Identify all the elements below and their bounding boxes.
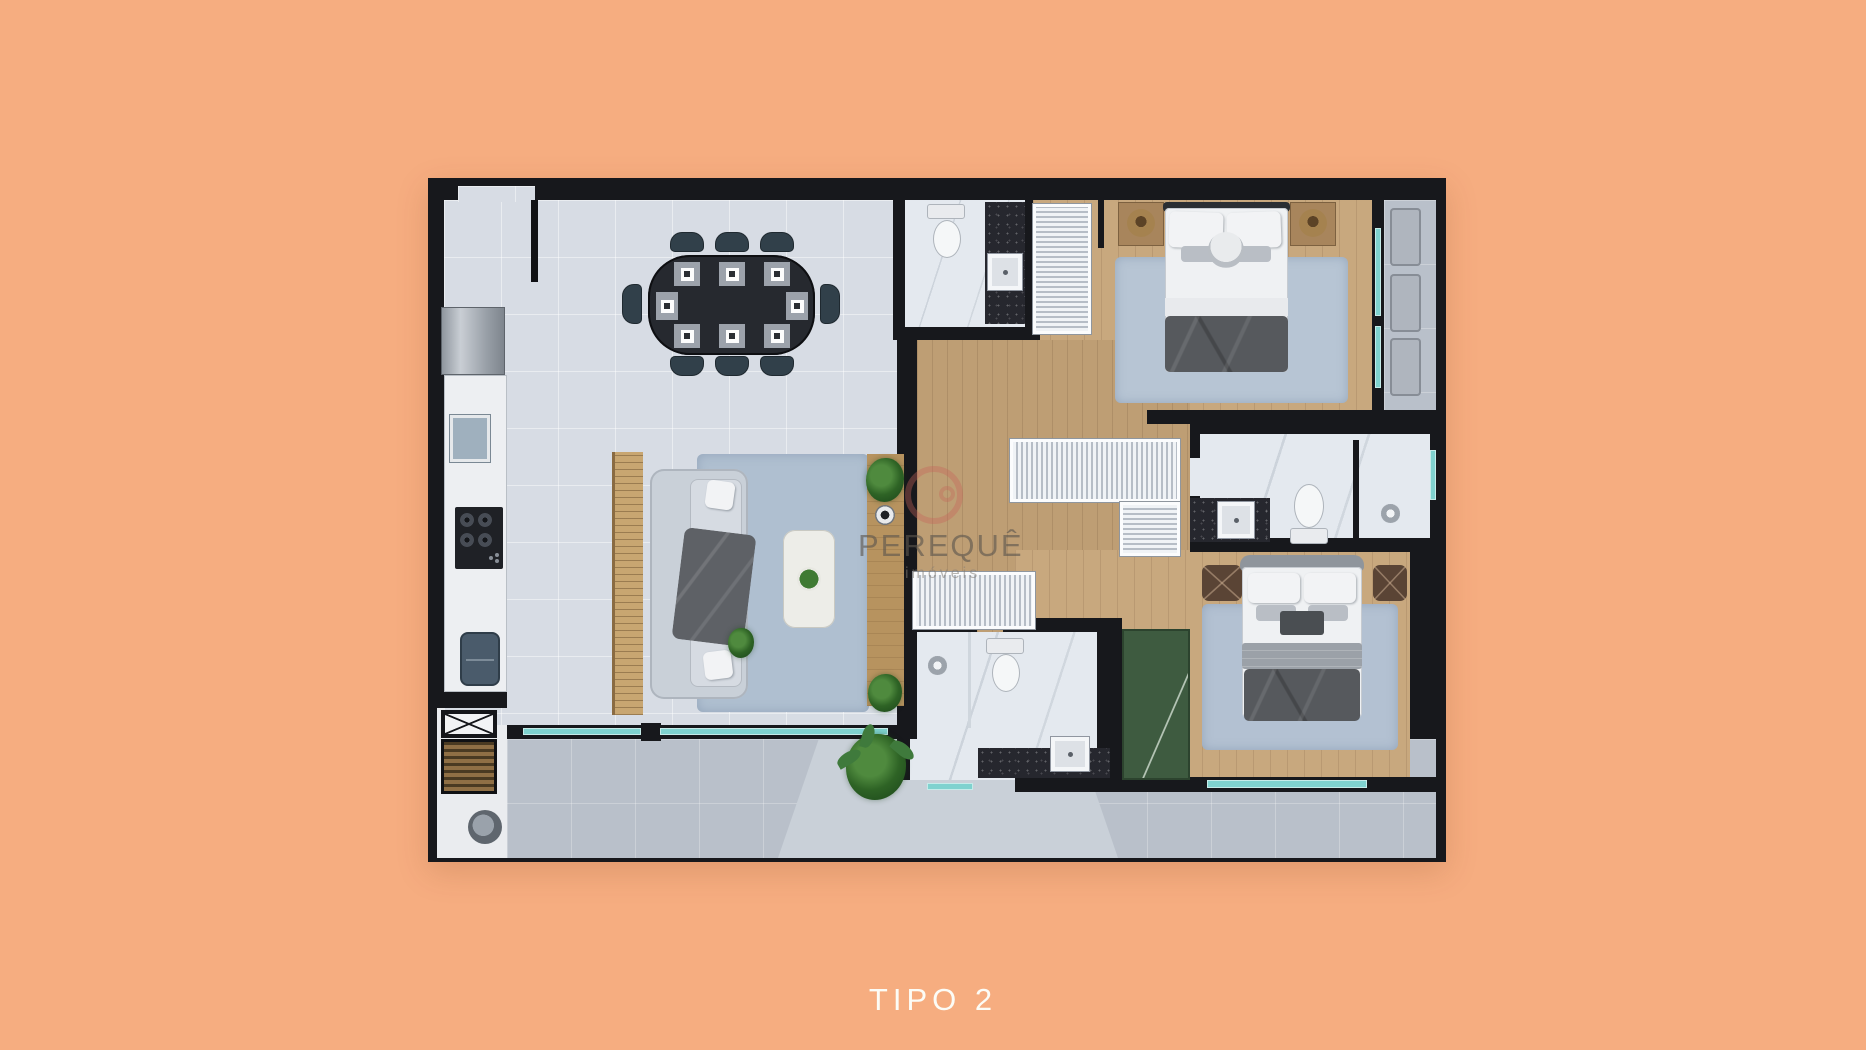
wall-shower-partition1 bbox=[1353, 440, 1359, 544]
burner-icon bbox=[478, 533, 492, 547]
wall-powder-left bbox=[893, 200, 905, 333]
entry-door-leaf bbox=[531, 200, 538, 282]
place-setting bbox=[764, 262, 790, 286]
wall-terrace-pier bbox=[641, 723, 661, 741]
bathroom2-sink bbox=[1051, 737, 1089, 771]
hall-closet-long bbox=[1010, 439, 1180, 502]
toilet-bowl bbox=[992, 654, 1020, 692]
folded-blanket bbox=[1280, 611, 1324, 635]
toilet-bowl bbox=[1294, 484, 1324, 528]
dining-chair bbox=[670, 356, 704, 376]
burner-icon bbox=[460, 533, 474, 547]
sofa bbox=[650, 469, 748, 699]
living-sliding-door-glass-right bbox=[660, 728, 888, 735]
bed-bedroom2 bbox=[1240, 555, 1364, 721]
bedroom1-glass-wall-b bbox=[1375, 326, 1381, 388]
barbecue-grill bbox=[441, 739, 497, 794]
wall-bathroom1-left-a bbox=[1190, 434, 1200, 458]
burner-icon bbox=[478, 513, 492, 527]
page-background: { "caption": { "label": "TIPO 2" }, "wat… bbox=[0, 0, 1866, 1050]
sun-lounger bbox=[1390, 208, 1421, 266]
shower-head bbox=[1381, 504, 1400, 523]
shower-glass-partition bbox=[968, 632, 971, 728]
toilet-tank bbox=[927, 204, 965, 219]
bathroom2-window bbox=[927, 783, 973, 790]
pouf bbox=[1202, 565, 1242, 601]
duvet bbox=[1165, 316, 1288, 372]
place-setting bbox=[719, 324, 745, 348]
powder-room-sink bbox=[988, 254, 1022, 290]
watermark-tagline: imóveis bbox=[905, 565, 980, 583]
dining-chair bbox=[760, 232, 794, 252]
dining-chair bbox=[670, 232, 704, 252]
bedroom1-glass-wall-a bbox=[1375, 228, 1381, 316]
sun-lounger bbox=[1390, 338, 1421, 396]
suite-closet bbox=[1033, 204, 1091, 334]
duvet bbox=[1244, 669, 1360, 721]
burner-icon bbox=[460, 513, 474, 527]
double-basin-sink bbox=[460, 632, 500, 686]
toilet-tank bbox=[986, 638, 1024, 654]
bed-suite bbox=[1163, 202, 1290, 372]
speaker bbox=[875, 505, 895, 525]
wall-closet-stub bbox=[1098, 198, 1104, 248]
place-setting bbox=[764, 324, 790, 348]
dining-chair bbox=[715, 356, 749, 376]
wall-kitchen-service bbox=[440, 692, 507, 708]
service-shaft bbox=[441, 710, 497, 738]
kitchen-sink bbox=[450, 415, 490, 462]
shower-head bbox=[928, 656, 947, 675]
wall-powder-right bbox=[1025, 200, 1033, 333]
cooktop bbox=[455, 507, 503, 569]
watermark-logo-icon bbox=[905, 466, 963, 524]
nightstand-lamp bbox=[1299, 209, 1327, 237]
dining-chair bbox=[820, 284, 840, 324]
plant-bowl bbox=[797, 567, 821, 591]
sofa-pillow bbox=[704, 479, 736, 511]
refrigerator bbox=[441, 307, 505, 375]
knob-icon bbox=[495, 559, 499, 563]
toilet-tank bbox=[1290, 528, 1328, 544]
bathroom1-window bbox=[1430, 450, 1436, 500]
knob-icon bbox=[495, 553, 499, 557]
wall-bedroom1-bottom bbox=[1147, 410, 1436, 424]
bathroom1-sink bbox=[1218, 502, 1254, 538]
folded-coverlet bbox=[1242, 643, 1362, 669]
bathroom2-vanity bbox=[978, 748, 1110, 778]
green-cabinet bbox=[1122, 629, 1190, 780]
place-setting bbox=[674, 262, 700, 286]
place-setting bbox=[656, 292, 678, 320]
dining-chair bbox=[760, 356, 794, 376]
place-setting bbox=[674, 324, 700, 348]
laundry-tub bbox=[468, 810, 502, 844]
wall-powder-bottom bbox=[893, 327, 1040, 340]
bedroom2-sliding-door-glass bbox=[1207, 780, 1367, 788]
knob-icon bbox=[489, 556, 493, 560]
entry-opening bbox=[458, 186, 535, 202]
sheet-fold bbox=[1165, 298, 1288, 316]
hall-closet-return bbox=[1120, 502, 1180, 556]
dining-chair bbox=[622, 284, 642, 324]
nightstand-lamp bbox=[1127, 209, 1155, 237]
dining-chair bbox=[715, 232, 749, 252]
pillow bbox=[1248, 573, 1300, 603]
plan-caption: TIPO 2 bbox=[0, 982, 1866, 1018]
toilet-bowl bbox=[933, 220, 961, 258]
coffee-table bbox=[783, 530, 835, 628]
wood-slat-panel bbox=[612, 452, 643, 715]
place-setting bbox=[786, 292, 808, 320]
place-setting bbox=[719, 262, 745, 286]
living-sliding-door-glass-left bbox=[523, 728, 641, 735]
round-pillow bbox=[1208, 232, 1244, 268]
sofa-pillow bbox=[702, 649, 733, 680]
pouf bbox=[1373, 565, 1407, 601]
sun-lounger bbox=[1390, 274, 1421, 332]
watermark-brand: PEREQUÊ bbox=[858, 528, 1024, 564]
pillow bbox=[1304, 573, 1356, 603]
